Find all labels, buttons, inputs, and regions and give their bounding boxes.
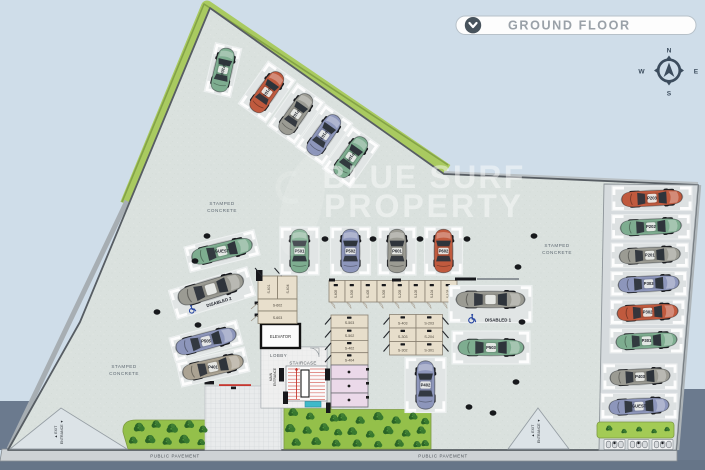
- svg-text:P303: P303: [644, 281, 654, 286]
- svg-text:P505: P505: [201, 338, 211, 343]
- svg-text:P503: P503: [486, 345, 496, 350]
- svg-text:S-404: S-404: [345, 359, 355, 363]
- svg-text:▲ EXIT: ▲ EXIT: [531, 424, 535, 437]
- svg-text:S-602: S-602: [273, 304, 283, 308]
- svg-text:GROUND FLOOR: GROUND FLOOR: [508, 19, 631, 33]
- svg-text:S-604: S-604: [286, 284, 290, 293]
- svg-text:S-403: S-403: [398, 322, 408, 326]
- svg-text:ENTRANCE: ENTRANCE: [273, 367, 277, 386]
- svg-text:S-405: S-405: [366, 290, 370, 299]
- svg-text:S-104: S-104: [430, 290, 434, 299]
- svg-text:S-603: S-603: [273, 316, 283, 320]
- svg-text:P602: P602: [439, 248, 449, 253]
- svg-text:S-605: S-605: [334, 290, 338, 299]
- svg-text:CONCRETE: CONCRETE: [207, 208, 237, 213]
- svg-text:P302: P302: [643, 310, 653, 315]
- svg-text:P403: P403: [635, 374, 645, 379]
- svg-text:GUEST: GUEST: [632, 404, 647, 409]
- svg-text:S-503: S-503: [345, 321, 355, 325]
- svg-text:CONCRETE: CONCRETE: [109, 371, 139, 376]
- svg-text:STAMPED: STAMPED: [544, 243, 570, 248]
- svg-text:S-301: S-301: [424, 349, 434, 353]
- svg-text:P502: P502: [346, 248, 356, 253]
- svg-text:PUBLIC PAVEMENT: PUBLIC PAVEMENT: [418, 454, 468, 459]
- svg-text:PROPERTY: PROPERTY: [324, 188, 524, 224]
- svg-text:STAIRCASE: STAIRCASE: [289, 361, 316, 366]
- svg-text:S: S: [667, 91, 672, 98]
- svg-text:ELEVATOR: ELEVATOR: [270, 334, 291, 339]
- svg-text:S-105: S-105: [414, 290, 418, 299]
- svg-text:S-305: S-305: [382, 290, 386, 299]
- svg-text:P401: P401: [208, 364, 218, 369]
- svg-text:S-502: S-502: [345, 334, 355, 338]
- svg-text:S-204: S-204: [424, 335, 434, 339]
- svg-text:P203: P203: [647, 196, 657, 201]
- svg-text:CONCRETE: CONCRETE: [542, 250, 572, 255]
- svg-text:S-303: S-303: [398, 335, 408, 339]
- svg-text:▲ EXIT: ▲ EXIT: [54, 425, 58, 438]
- svg-text:E: E: [694, 68, 699, 75]
- svg-text:N: N: [667, 48, 672, 55]
- svg-text:DISABLED 1: DISABLED 1: [485, 318, 512, 323]
- svg-text:P201: P201: [645, 253, 655, 258]
- svg-text:ENTRANCE ▼: ENTRANCE ▼: [537, 419, 541, 443]
- svg-text:PUBLIC PAVEMENT: PUBLIC PAVEMENT: [150, 454, 200, 459]
- svg-text:STAMPED: STAMPED: [209, 201, 235, 206]
- svg-text:LOBBY: LOBBY: [270, 353, 287, 358]
- svg-text:P301: P301: [642, 338, 652, 343]
- svg-text:P402: P402: [421, 382, 431, 387]
- svg-text:W: W: [638, 68, 645, 75]
- svg-text:ENTRANCE ▼: ENTRANCE ▼: [60, 420, 64, 444]
- svg-text:S-402: S-402: [345, 346, 355, 350]
- svg-text:GUEST: GUEST: [215, 248, 230, 253]
- svg-text:S-302: S-302: [398, 349, 408, 353]
- svg-text:P202: P202: [646, 224, 656, 229]
- svg-text:STAMPED: STAMPED: [111, 364, 137, 369]
- svg-text:S-205: S-205: [398, 290, 402, 299]
- svg-text:S-505: S-505: [350, 290, 354, 299]
- svg-text:S-203: S-203: [424, 322, 434, 326]
- svg-text:P601: P601: [392, 248, 402, 253]
- svg-text:S-601: S-601: [267, 284, 271, 293]
